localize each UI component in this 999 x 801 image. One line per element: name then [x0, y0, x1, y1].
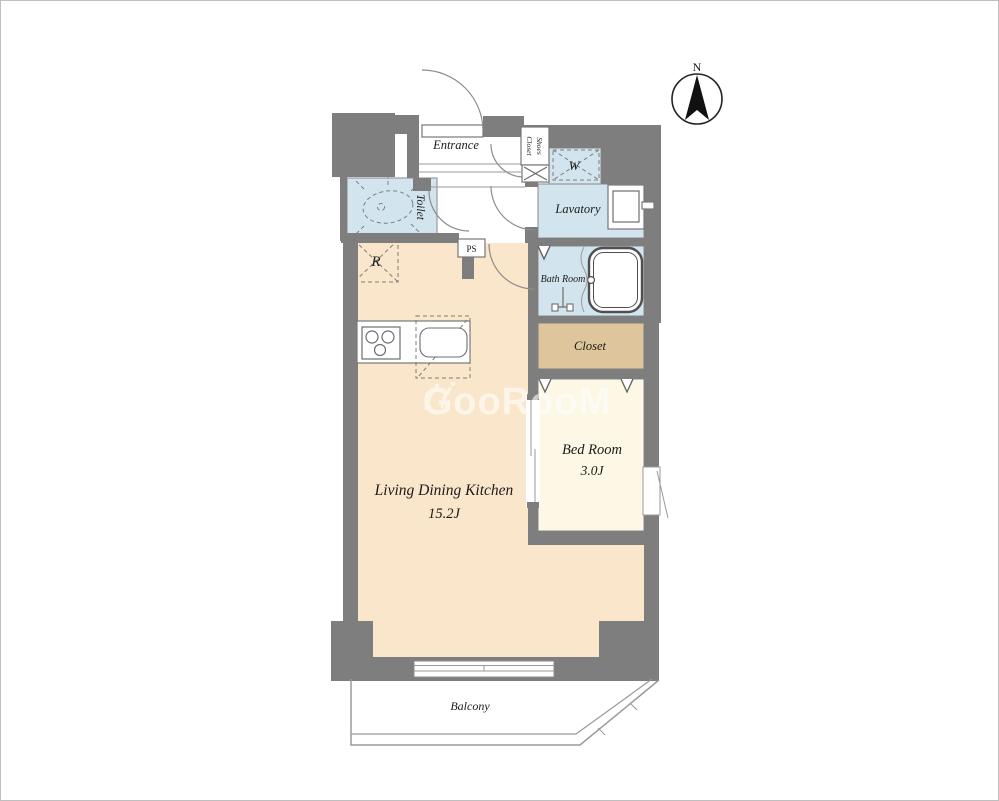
balcony-label: Balcony [450, 699, 490, 713]
entrance-door [422, 70, 483, 137]
shoes-closet-label-line2: Closet [525, 136, 534, 156]
closet-label: Closet [574, 339, 606, 353]
kitchen-sink-icon [420, 328, 467, 357]
ldk-area-label: 15.2J [428, 506, 460, 522]
watermark: GooRooM [423, 381, 612, 423]
washer-label: W [569, 158, 581, 173]
floor-plan-svg: Entrance Shoes Closet W Lavatory Toilet … [1, 1, 998, 800]
ldk-label: Living Dining Kitchen [374, 482, 514, 499]
bathtub-icon [588, 248, 642, 312]
watermark-text: GooRooM [423, 381, 612, 423]
balcony-window [414, 661, 554, 677]
shoes-closet-label-line1: Shoes [535, 137, 544, 155]
lavatory-door-arc [491, 186, 535, 230]
bath-room-label: Bath Room [541, 274, 586, 285]
toilet-label: Toilet [414, 194, 426, 221]
pipe-space-label: PS [466, 244, 476, 254]
bedroom-window [643, 467, 668, 518]
balcony-outline [351, 679, 659, 745]
floor-plan-image: Entrance Shoes Closet W Lavatory Toilet … [0, 0, 999, 801]
refrigerator-label: R [370, 254, 380, 270]
compass-north-icon: N [672, 60, 722, 124]
entrance-label: Entrance [432, 138, 479, 152]
lavatory-label: Lavatory [554, 202, 601, 216]
compass-north-label: N [693, 60, 702, 74]
bedroom-area-label: 3.0J [580, 463, 605, 478]
bedroom-label: Bed Room [562, 442, 622, 458]
